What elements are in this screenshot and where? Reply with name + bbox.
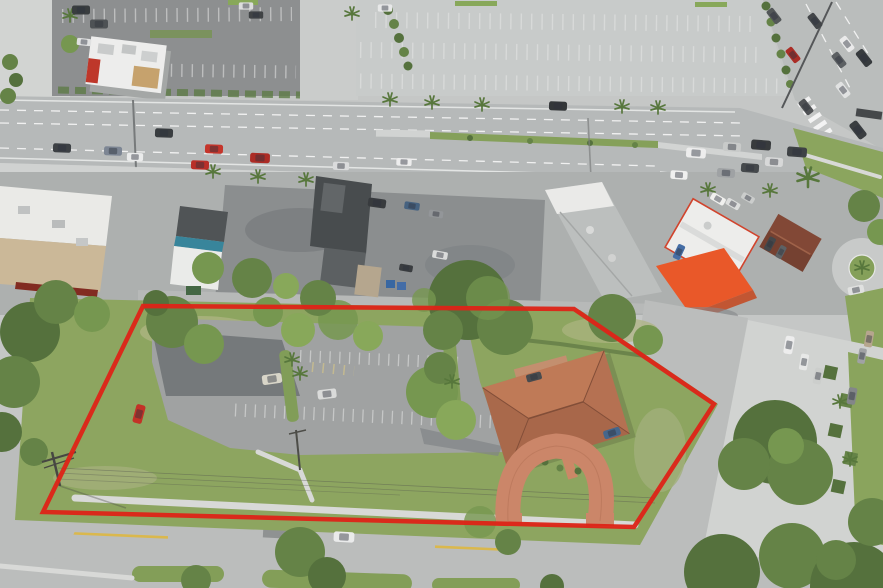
aerial-photo: Aerial drone photograph of a commercial … [0,0,883,588]
haze-overlay [0,0,883,588]
